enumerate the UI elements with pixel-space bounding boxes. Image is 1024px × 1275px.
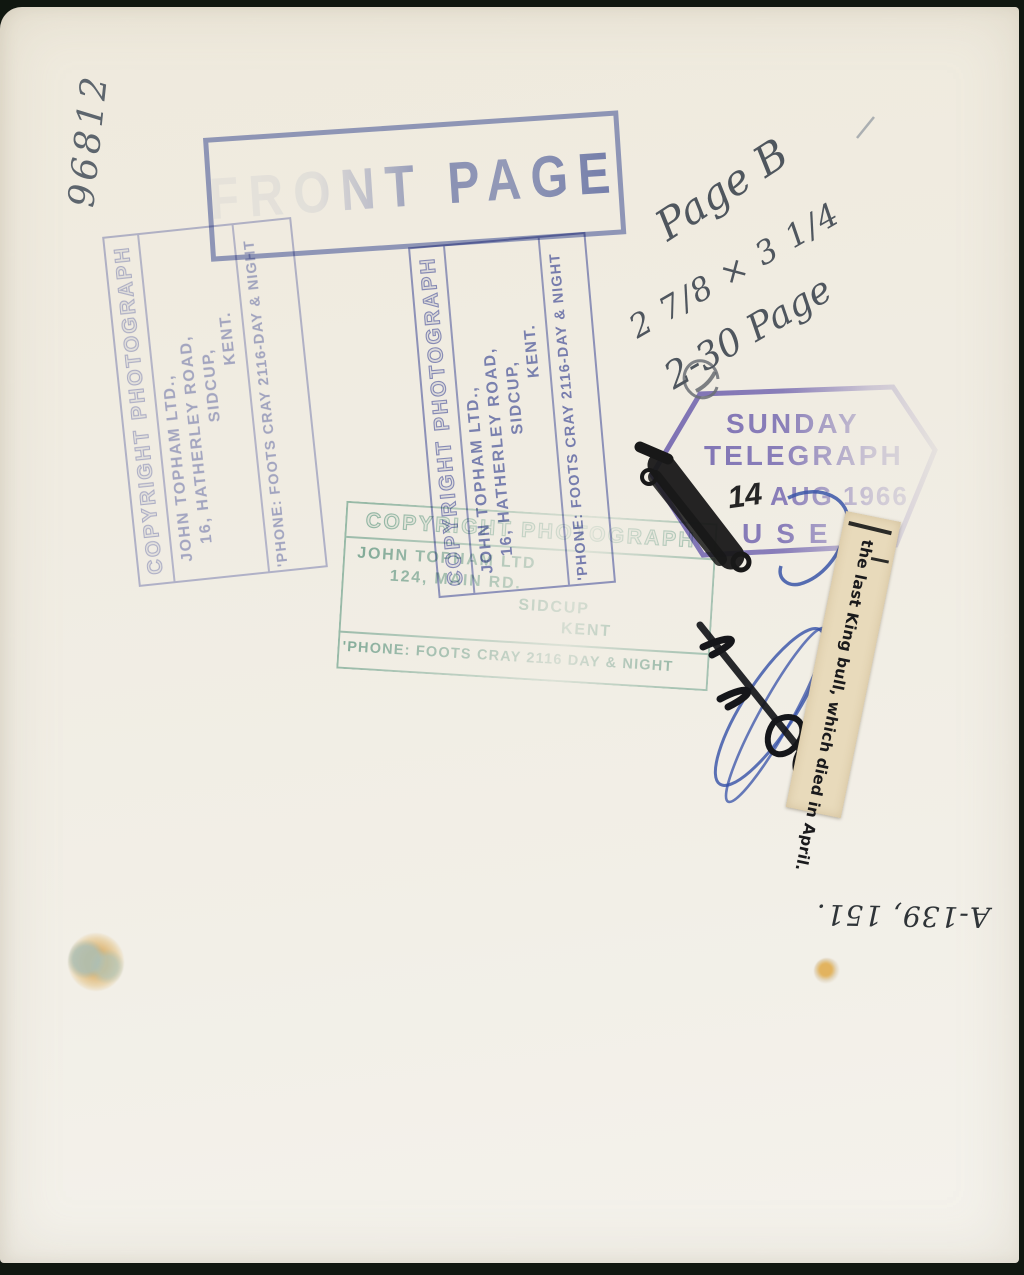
telegraph-stamp-line1: SUNDAY [726, 408, 860, 439]
topham-purple-copyright-stamp-middle: COPYRIGHT PHOTOGRAPH JOHN TOPHAM LTD., 1… [408, 232, 616, 598]
topham-purple-copyright-stamp-left: COPYRIGHT PHOTOGRAPH JOHN TOPHAM LTD., 1… [102, 217, 328, 587]
handwritten-reference-number: 96812 [61, 46, 118, 209]
telegraph-stamp-date: AUG 1966 [770, 481, 909, 511]
clipping-rule [848, 521, 892, 535]
telegraph-stamp-handwritten-day: 14 [725, 476, 764, 515]
clipping-rule-fragment [871, 557, 889, 564]
handwritten-archive-number: A-139, 151. [786, 897, 991, 934]
stain [68, 933, 124, 991]
scan-background: { "photo_back": { "reference_number": "9… [0, 0, 1024, 1268]
front-page-stamp-label: FRONT PAGE [207, 139, 622, 233]
pencil-tick [857, 117, 874, 138]
clipping-caption: the last King bull, which died in April. [804, 538, 876, 811]
telegraph-stamp-line2: TELEGRAPH [704, 440, 904, 471]
photo-verso-paper: COPYRIGHT PHOTOGRAPH JOHN TOPHAM LTD 124… [0, 7, 1019, 1263]
stain [814, 958, 840, 984]
